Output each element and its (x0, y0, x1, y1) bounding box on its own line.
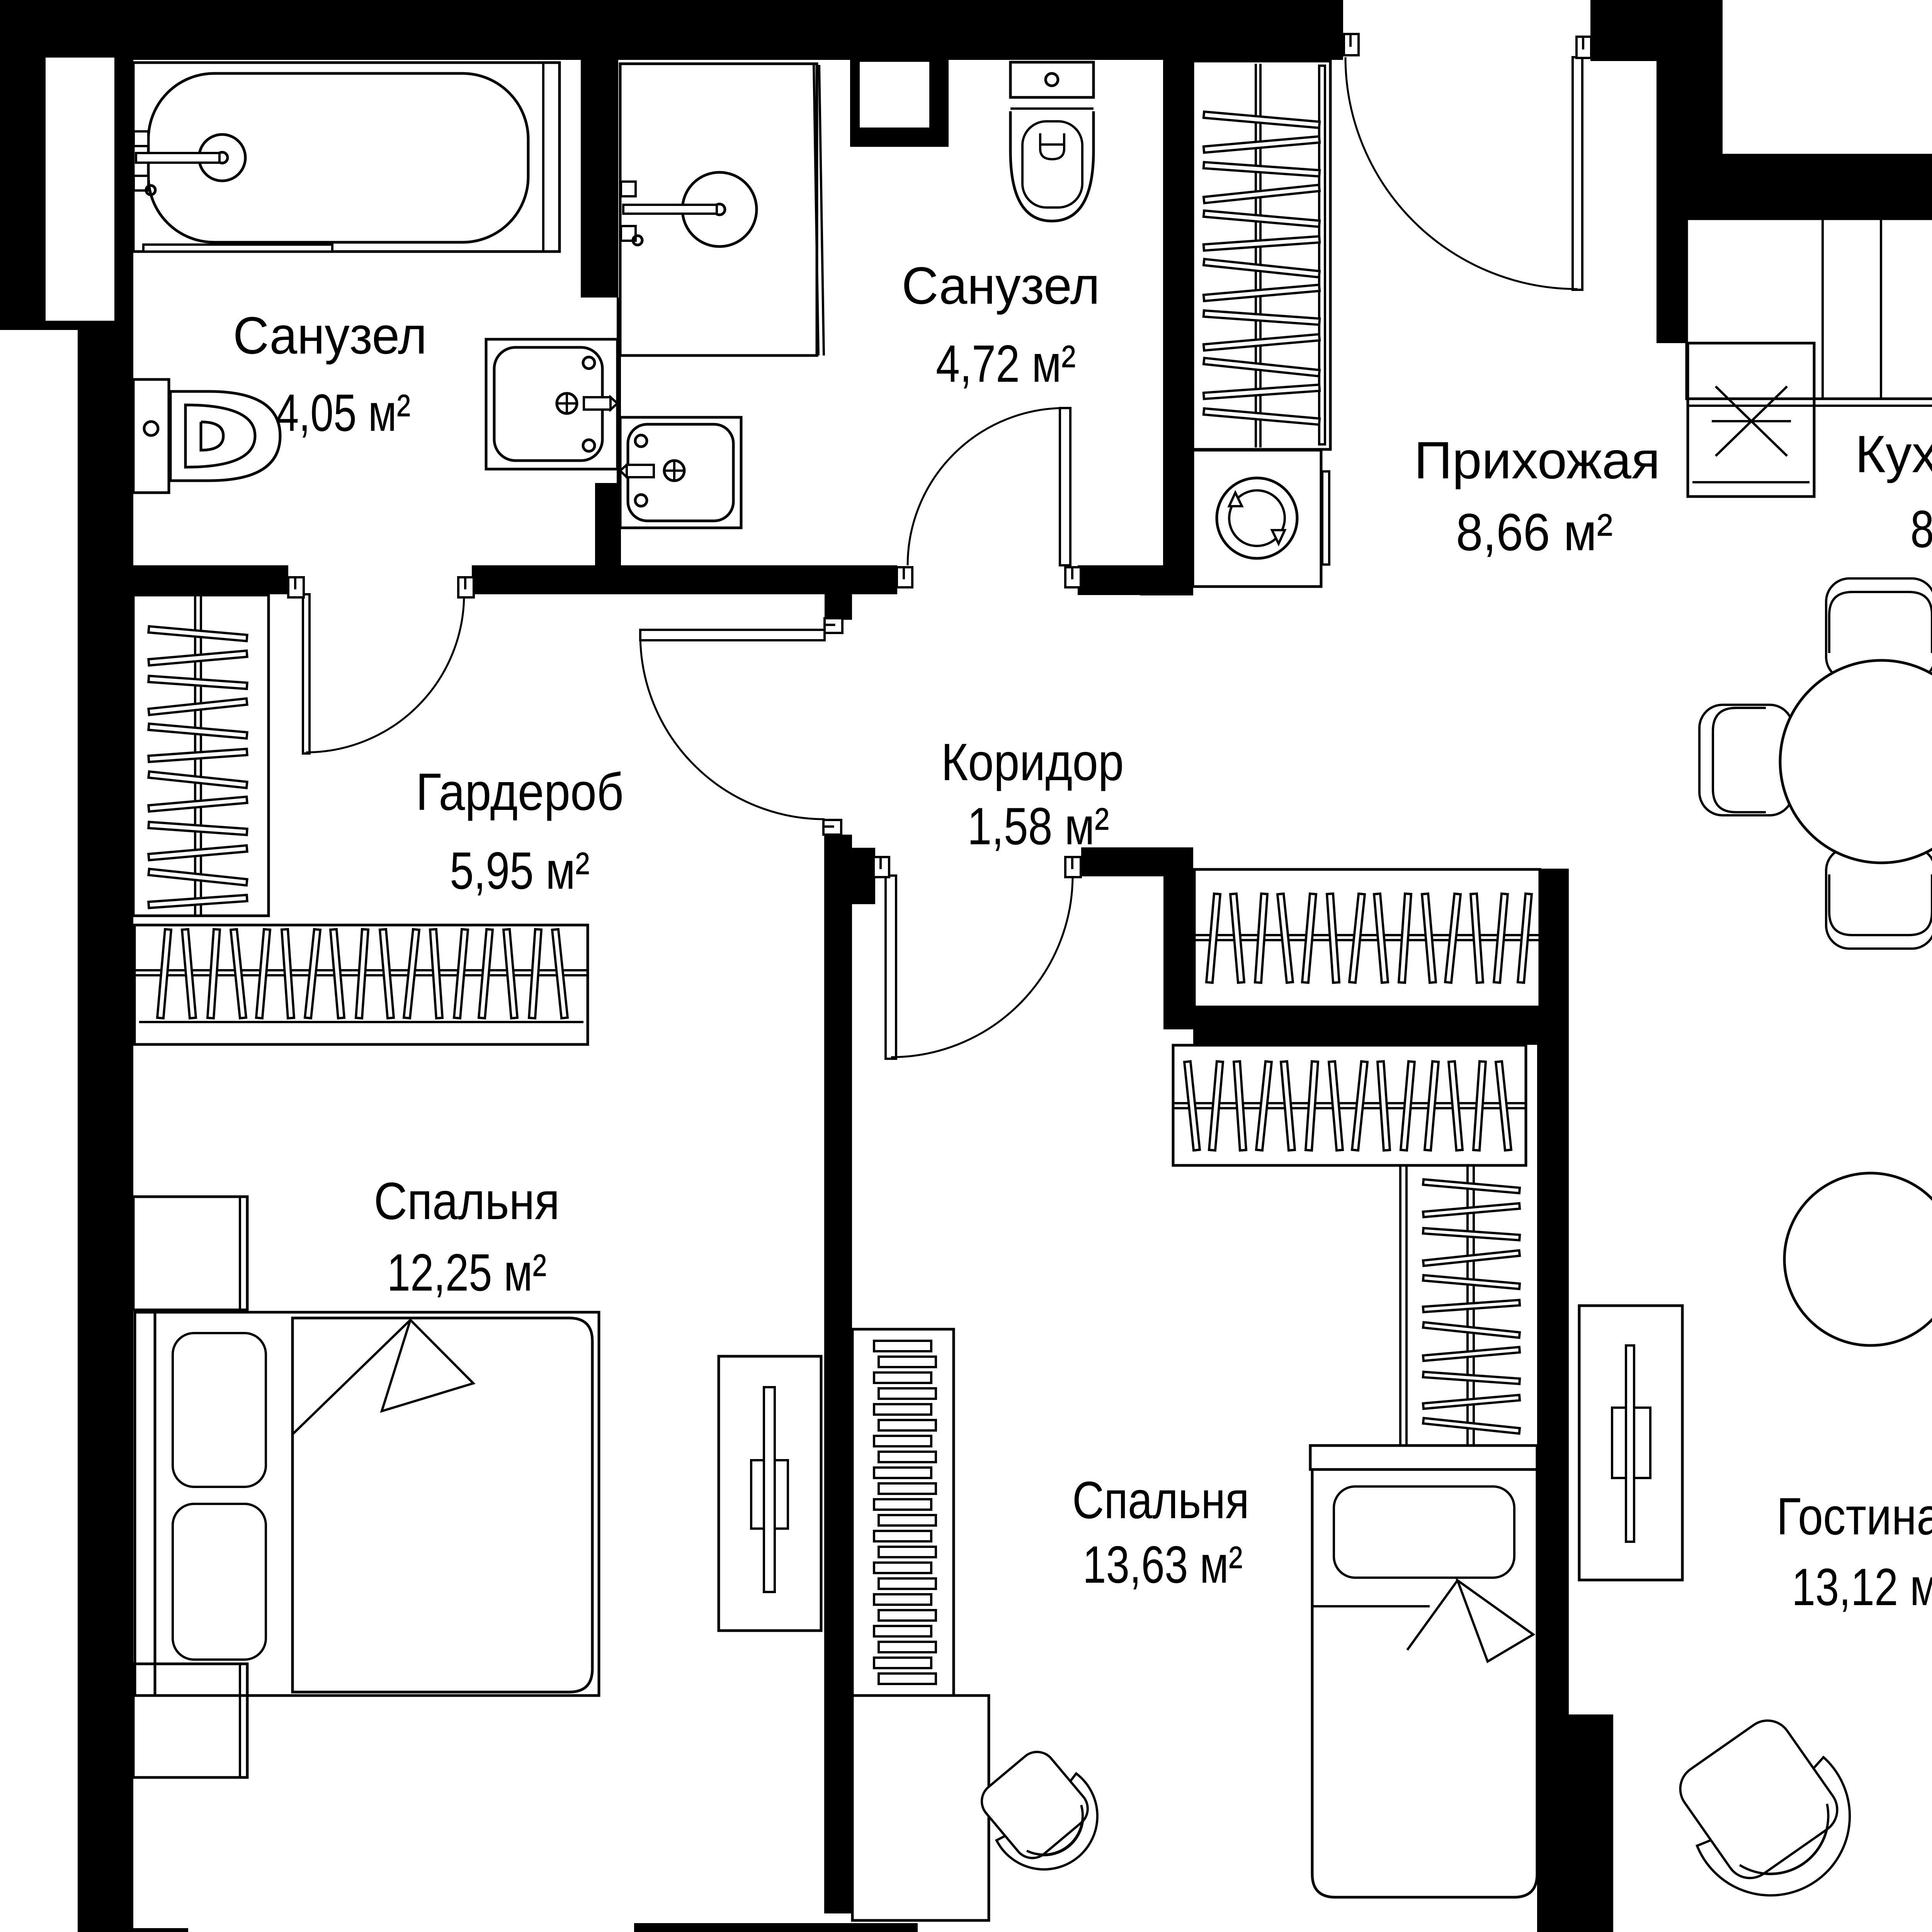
svg-text:Гостиная: Гостиная (1777, 1487, 1932, 1546)
svg-text:13,12 м²: 13,12 м² (1792, 1558, 1932, 1616)
svg-text:4,05 м²: 4,05 м² (276, 383, 411, 442)
svg-text:8,66 м²: 8,66 м² (1456, 503, 1613, 561)
svg-text:Спальня: Спальня (1072, 1471, 1249, 1529)
svg-text:Спальня: Спальня (374, 1172, 560, 1230)
svg-text:1,58 м²: 1,58 м² (968, 797, 1109, 855)
svg-text:Прихожая: Прихожая (1414, 431, 1660, 490)
svg-text:Кухня-ниша: Кухня-ниша (1855, 425, 1932, 483)
svg-text:Санузел: Санузел (902, 256, 1100, 315)
svg-text:4,72 м²: 4,72 м² (936, 334, 1076, 393)
svg-text:Санузел: Санузел (233, 306, 427, 365)
svg-text:5,95 м²: 5,95 м² (450, 841, 590, 900)
svg-text:Гардероб: Гардероб (416, 762, 624, 821)
svg-text:8,71 м²: 8,71 м² (1910, 500, 1932, 558)
svg-text:12,25 м²: 12,25 м² (387, 1243, 547, 1302)
svg-text:13,63 м²: 13,63 м² (1083, 1535, 1243, 1594)
svg-text:Коридор: Коридор (941, 733, 1124, 791)
